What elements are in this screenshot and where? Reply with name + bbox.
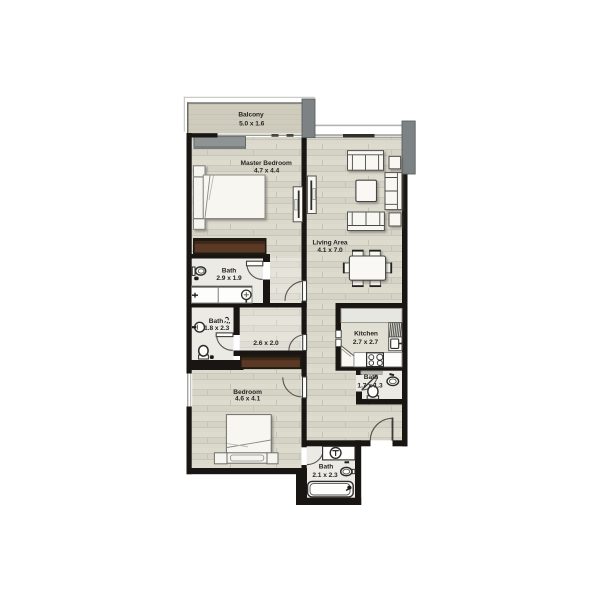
svg-text:4.7 x 4.4: 4.7 x 4.4	[254, 167, 280, 174]
svg-text:4.1 x 7.0: 4.1 x 7.0	[317, 247, 343, 254]
svg-text:2.7 x 2.7: 2.7 x 2.7	[353, 339, 379, 346]
svg-text:4.6 x 4.1: 4.6 x 4.1	[235, 395, 261, 402]
svg-text:1.7 x 1.3: 1.7 x 1.3	[357, 383, 383, 390]
svg-text:Bath: Bath	[209, 318, 223, 325]
svg-text:Kitchen: Kitchen	[354, 330, 378, 337]
svg-text:Bath: Bath	[222, 267, 236, 274]
svg-text:Bath: Bath	[364, 374, 378, 381]
svg-text:Bath: Bath	[319, 463, 333, 470]
svg-text:1.8 x 2.3: 1.8 x 2.3	[204, 325, 230, 332]
svg-text:2.9 x 1.9: 2.9 x 1.9	[216, 275, 242, 282]
svg-text:2.1 x 2.3: 2.1 x 2.3	[312, 472, 338, 479]
svg-text:5.0 x 1.6: 5.0 x 1.6	[239, 121, 265, 128]
svg-text:Living Area: Living Area	[312, 240, 347, 247]
svg-text:2.6 x 2.0: 2.6 x 2.0	[253, 340, 279, 347]
svg-text:Balcony: Balcony	[238, 112, 264, 119]
svg-text:Master Bedroom: Master Bedroom	[241, 160, 293, 167]
